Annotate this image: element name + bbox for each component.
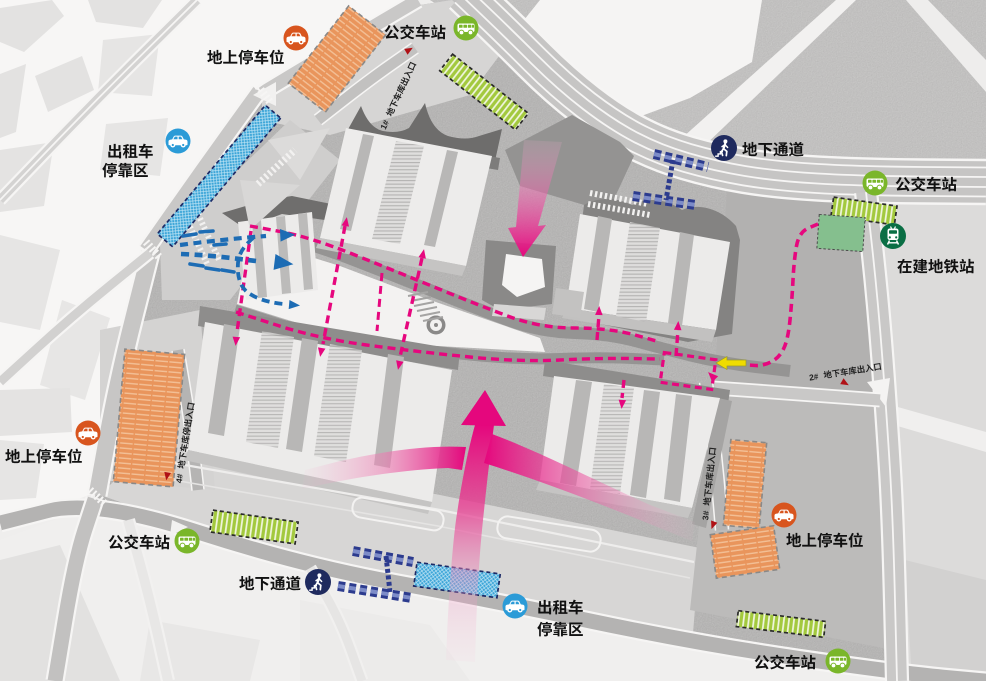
svg-text:4#: 4# [174,473,185,484]
svg-text:3#: 3# [700,510,711,521]
svg-text:2#: 2# [808,371,819,382]
